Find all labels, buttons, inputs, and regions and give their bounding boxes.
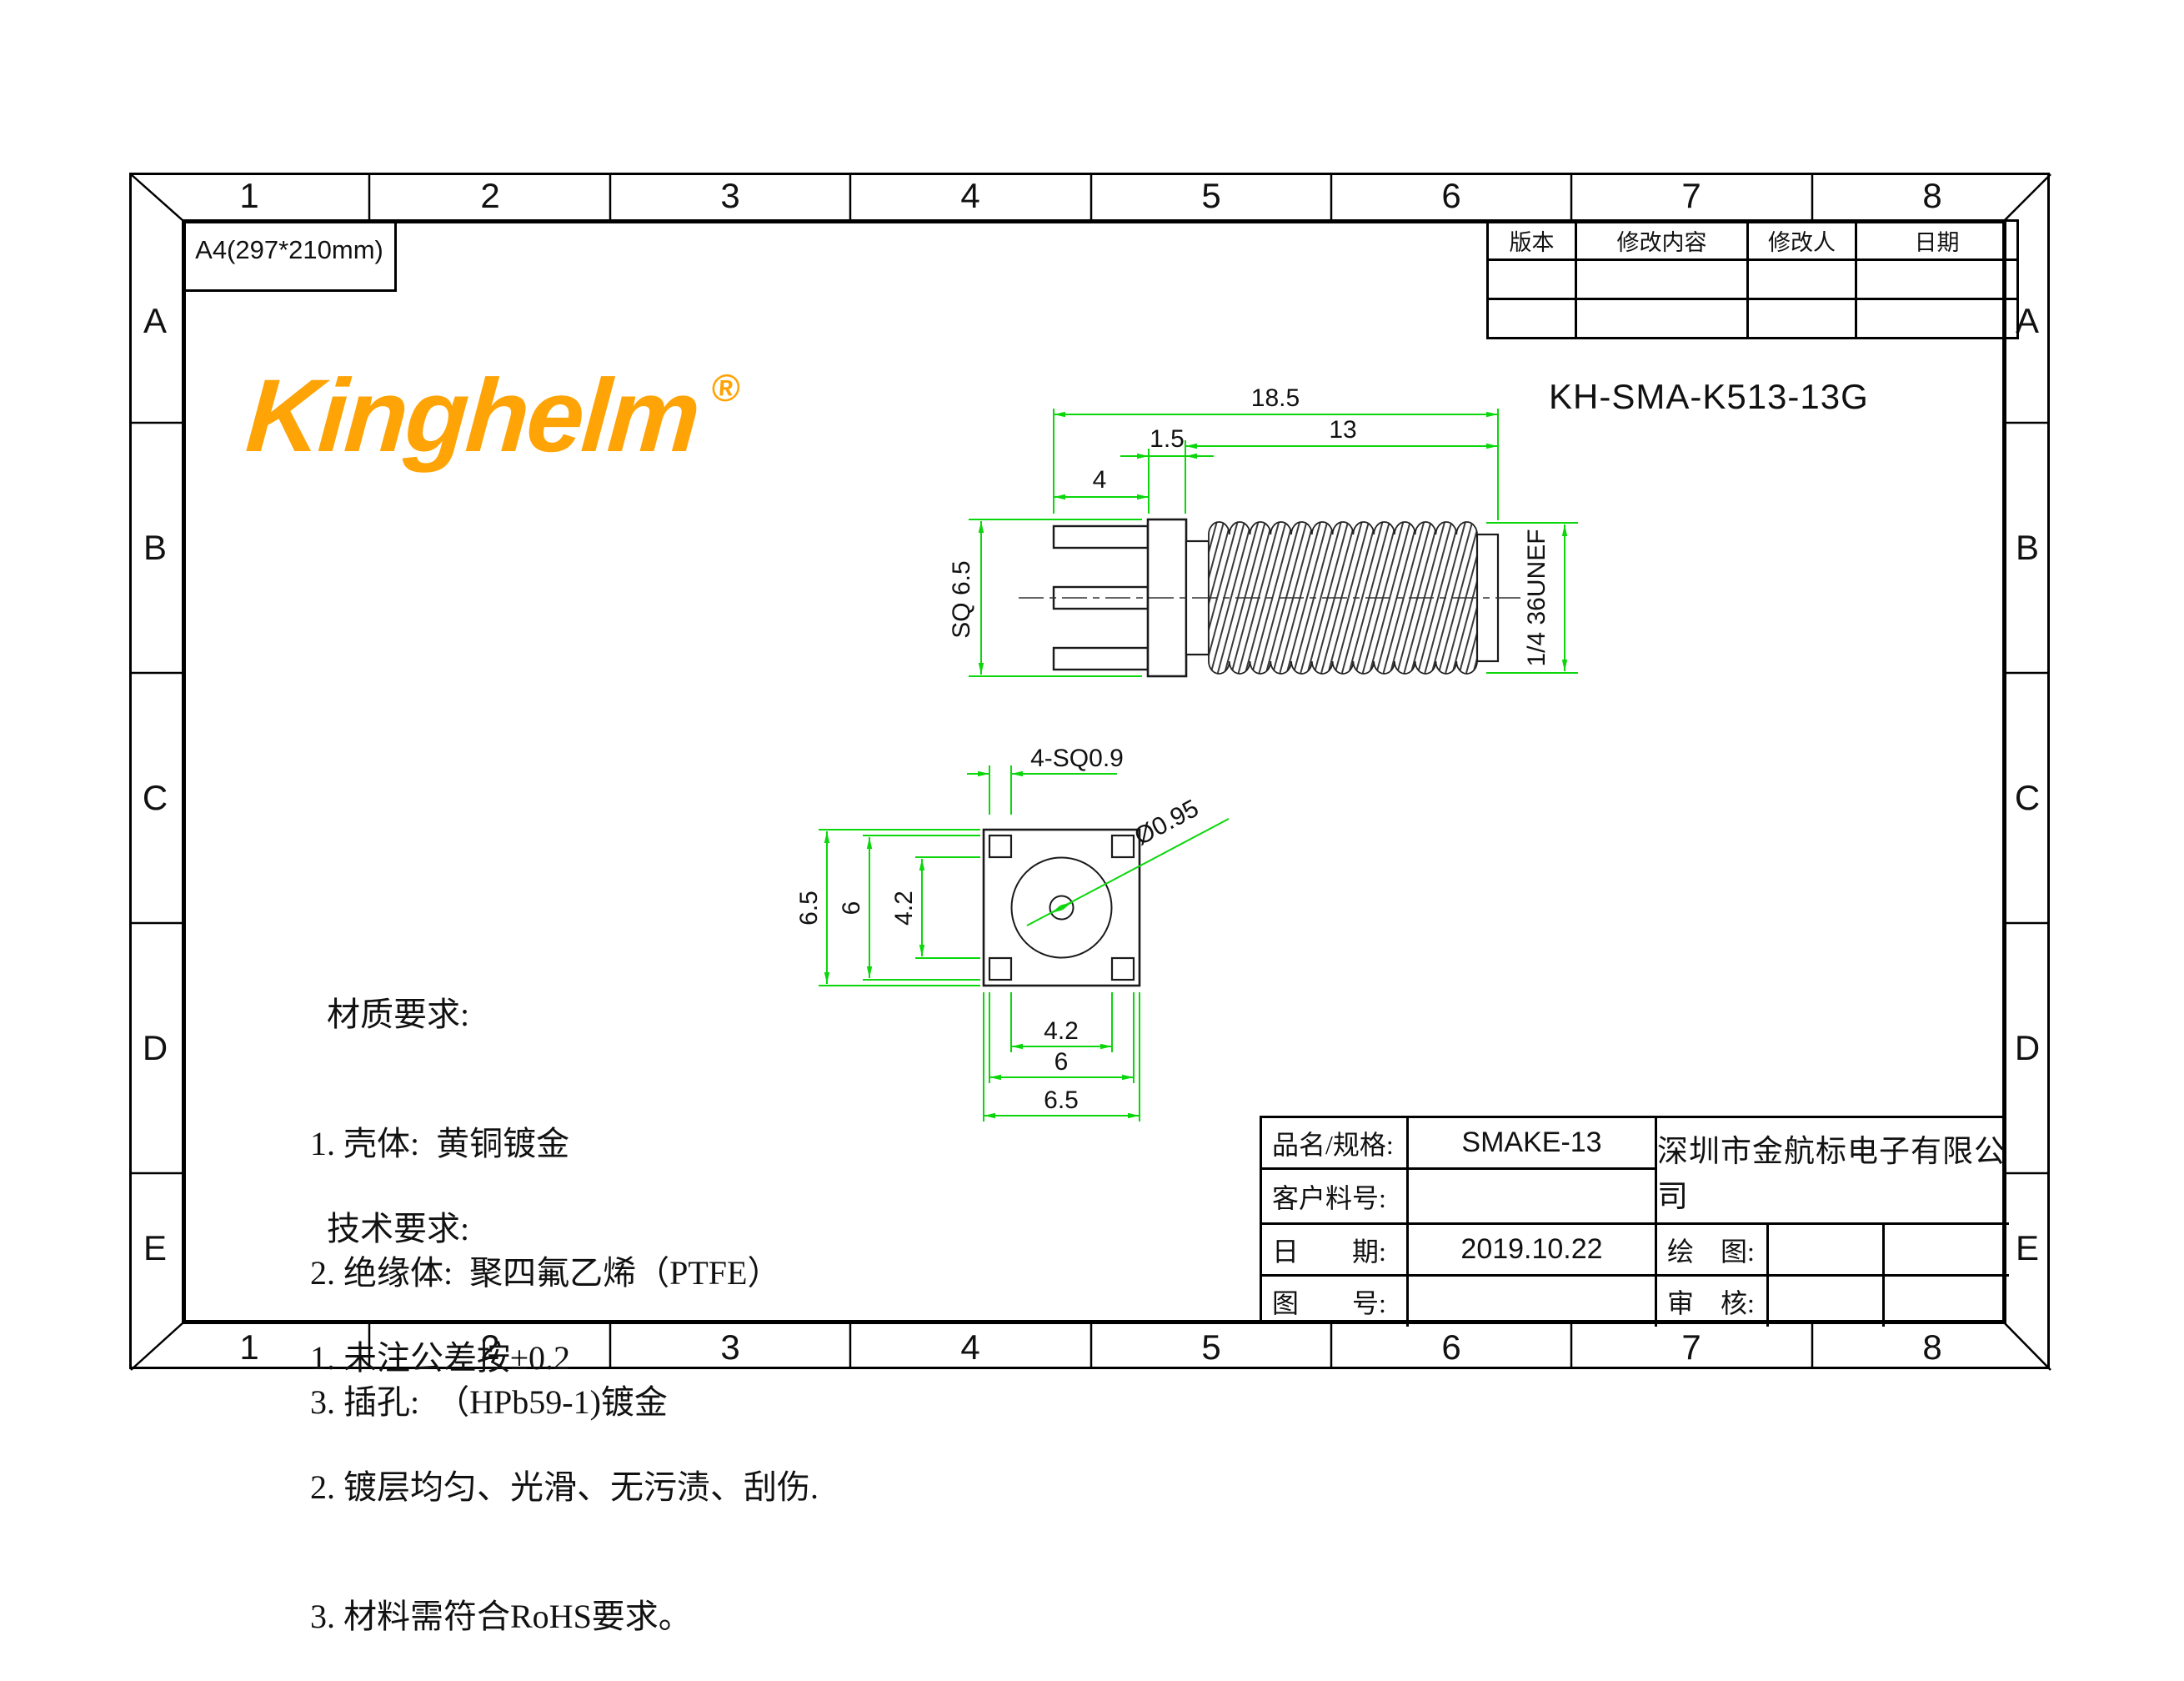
drawn-by-value [1769,1225,1885,1277]
technical-requirements-title: 技术要求: [310,1203,819,1254]
zone-row-c-left: C [131,778,179,818]
zone-col-8-bottom: 8 [1899,1328,1966,1367]
zone-col-8-top: 8 [1899,177,1966,215]
zone-row-b-left: B [131,528,179,568]
zone-col-7-bottom: 7 [1658,1328,1725,1367]
revision-empty-row [1488,299,2018,339]
zone-col-5-top: 5 [1178,177,1245,215]
dim-thread-length: 13 [1329,416,1356,444]
date-label: 日 期: [1262,1225,1409,1277]
product-spec-label: 品名/规格: [1262,1118,1409,1170]
customer-part-label: 客户料号: [1262,1170,1409,1225]
zone-col-5-bottom: 5 [1178,1328,1245,1367]
zone-row-b-right: B [2006,528,2049,568]
sheet-size-box: A4(297*210mm) [182,219,397,292]
zone-row-e-right: E [2006,1228,2049,1268]
zone-col-4-top: 4 [937,177,1004,215]
side-view-body [1019,519,1525,676]
drawn-by-label: 绘 图: [1657,1225,1769,1277]
drawing-no-value [1409,1277,1657,1327]
zone-col-1-top: 1 [216,177,283,215]
registered-trademark-icon: ® [709,366,741,409]
revision-col-version: 版本 [1488,221,1576,260]
zone-col-7-top: 7 [1658,177,1725,215]
dim-corner-pins: 4-SQ0.9 [1030,745,1124,772]
drawn-by-extra-cell [1885,1225,2009,1277]
customer-part-value [1409,1170,1657,1225]
corner-pin-tl [989,835,1011,857]
kinghelm-logo: Kinghelm® [243,357,742,475]
zone-col-2-top: 2 [457,177,523,215]
audit-extra-cell [1885,1277,2009,1327]
top-pin [1054,526,1148,548]
dim-total-length: 18.5 [1251,384,1300,412]
zone-col-3-top: 3 [697,177,764,215]
dim-pin-length: 4 [1093,466,1107,494]
dim-left-outer: 6.5 [795,891,823,926]
audit-value [1769,1277,1885,1327]
sheet-size-label: A4(297*210mm) [195,235,383,265]
revision-table: 版本 修改内容 修改人 日期 [1486,219,2019,339]
corner-pin-br [1112,958,1134,980]
technical-item-3: 3. 材料需符合RoHS要求。 [310,1591,819,1642]
zone-row-e-left: E [131,1228,179,1268]
zone-row-d-right: D [2006,1028,2049,1068]
dim-bottom-mid: 6 [1054,1048,1069,1076]
title-block: 品名/规格: SMAKE-13 客户料号: 日 期: 2019.10.22 图 … [1260,1116,2006,1324]
dim-bottom-outer: 6.5 [1044,1086,1079,1114]
technical-item-1: 1. 未注公差按±0.2 [310,1332,819,1383]
technical-requirements: 技术要求: 1. 未注公差按±0.2 2. 镀层均匀、光滑、无污渍、刮伤. 3.… [310,1125,819,1681]
revision-col-content: 修改内容 [1576,221,1748,260]
revision-col-modifier: 修改人 [1748,221,1856,260]
revision-header-row: 版本 修改内容 修改人 日期 [1488,221,2018,260]
audit-label: 审 核: [1657,1277,1769,1327]
dim-left-mid: 6 [838,901,865,916]
zone-col-6-top: 6 [1418,177,1485,215]
zone-col-1-bottom: 1 [216,1328,283,1367]
dim-center-hole: Ø0.95 [1130,795,1204,851]
date-value: 2019.10.22 [1409,1225,1657,1277]
dimension-texts: 18.5 13 1.5 4 SQ 6.5 1/4 36UNEF 4-SQ0.9 … [795,384,1550,1114]
zone-row-c-right: C [2006,778,2049,818]
corner-pin-bl [989,958,1011,980]
dim-bottom-inner: 4.2 [1044,1017,1079,1045]
company-name: 深圳市金航标电子有限公司 [1657,1118,2009,1225]
zone-row-d-left: D [131,1028,179,1068]
zone-col-4-bottom: 4 [937,1328,1004,1367]
dim-thread-spec: 1/4 36UNEF [1523,529,1550,666]
kinghelm-logo-text: Kinghelm [243,359,702,474]
revision-col-date: 日期 [1856,221,2018,260]
material-requirements-title: 材质要求: [310,989,780,1040]
dimension-lines [819,409,1578,1122]
zone-row-a-left: A [131,301,179,341]
revision-empty-row [1488,260,2018,299]
bottom-pin [1054,648,1148,670]
drawing-no-label: 图 号: [1262,1277,1409,1327]
dim-flange-thickness: 1.5 [1150,425,1185,453]
technical-item-2: 2. 镀层均匀、光滑、无污渍、刮伤. [310,1462,819,1513]
dim-flange-square: SQ 6.5 [948,560,975,638]
dim-left-inner: 4.2 [890,891,918,926]
corner-pin-tr [1112,835,1134,857]
zone-col-6-bottom: 6 [1418,1328,1485,1367]
product-spec-value: SMAKE-13 [1409,1118,1657,1170]
